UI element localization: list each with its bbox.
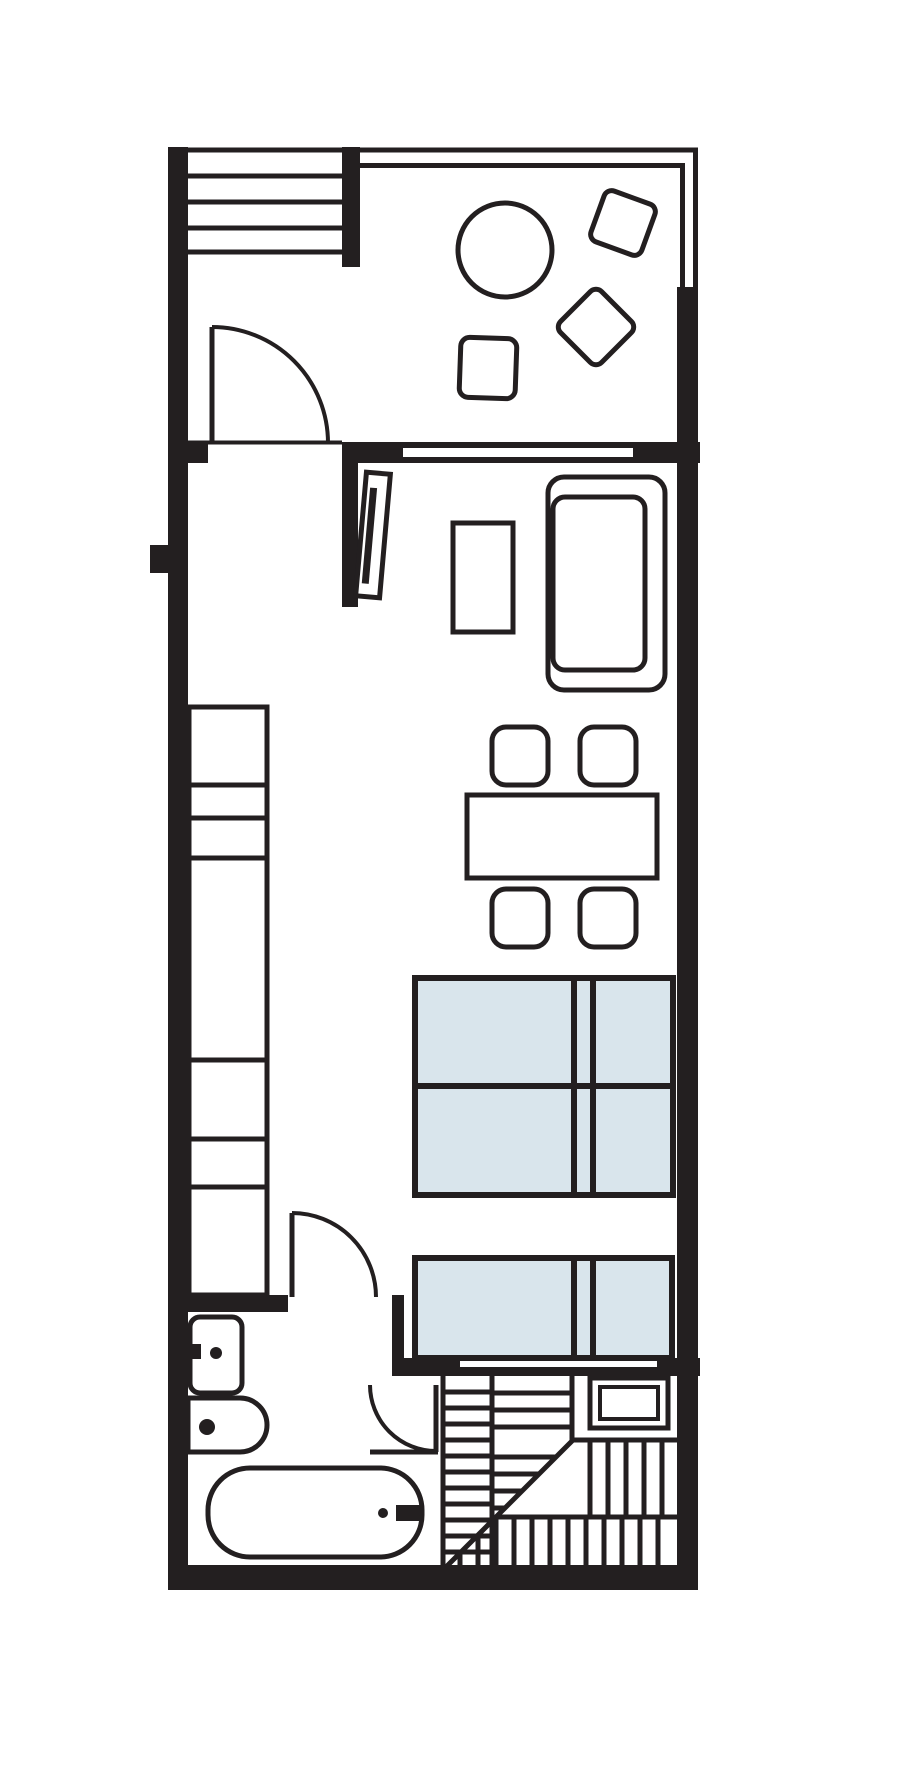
floor-plan-page bbox=[0, 0, 900, 1778]
bathtub bbox=[208, 1468, 424, 1557]
basin-tap bbox=[188, 1344, 201, 1359]
toilet-flush bbox=[199, 1419, 215, 1435]
dining-chair-3 bbox=[492, 889, 548, 947]
sofa bbox=[548, 477, 665, 690]
side-table bbox=[453, 523, 513, 632]
patio-chair-upper bbox=[588, 188, 657, 257]
dining-set bbox=[467, 727, 657, 947]
toilet bbox=[188, 1398, 267, 1452]
floor-hatch-inner bbox=[600, 1387, 658, 1419]
bathtub-tap bbox=[396, 1505, 424, 1521]
counter-outline bbox=[189, 707, 267, 1295]
entry-door bbox=[212, 327, 328, 443]
floor-hatch bbox=[590, 1378, 668, 1428]
basin-drain bbox=[210, 1347, 222, 1359]
left-wall-pier bbox=[150, 545, 168, 573]
floor-plan-drawing bbox=[0, 0, 900, 1778]
entry-landing-steps bbox=[186, 150, 342, 252]
dining-chair-2 bbox=[580, 727, 636, 785]
single-bed bbox=[415, 1258, 672, 1358]
bathtub-drain bbox=[378, 1508, 388, 1518]
entry-door-jamb bbox=[188, 443, 208, 463]
living-dining-area bbox=[356, 472, 665, 947]
wall-mounted-tv bbox=[356, 472, 391, 598]
balcony-left-wall bbox=[342, 147, 360, 267]
double-bed bbox=[415, 978, 673, 1195]
stair-door-swing bbox=[370, 1385, 436, 1451]
bathroom-top-wall bbox=[168, 1295, 288, 1312]
dining-chair-4 bbox=[580, 889, 636, 947]
bathroom-door bbox=[292, 1213, 376, 1297]
left-wall bbox=[168, 147, 188, 1590]
bathroom-door-swing bbox=[292, 1213, 376, 1297]
entry-door-swing bbox=[212, 327, 328, 443]
entry-landing bbox=[186, 150, 342, 443]
dining-table bbox=[467, 795, 657, 878]
round-patio-table bbox=[458, 203, 552, 297]
kitchen-counter bbox=[189, 707, 267, 1295]
patio-chair-lower bbox=[555, 286, 637, 368]
dining-chair-1 bbox=[492, 727, 548, 785]
bottom-wall bbox=[168, 1565, 698, 1590]
stair-door bbox=[370, 1385, 436, 1451]
sleeping-area bbox=[415, 978, 673, 1358]
wash-basin bbox=[188, 1317, 242, 1393]
right-wall bbox=[677, 287, 698, 1590]
window-to-balcony bbox=[403, 448, 633, 457]
sofa-seat bbox=[553, 497, 645, 670]
patio-chair-left bbox=[459, 337, 517, 399]
bedroom-stairs-slot bbox=[460, 1361, 657, 1367]
single-bed-outline bbox=[415, 1258, 672, 1358]
bathtub-outline bbox=[208, 1468, 422, 1557]
balcony bbox=[342, 147, 696, 399]
